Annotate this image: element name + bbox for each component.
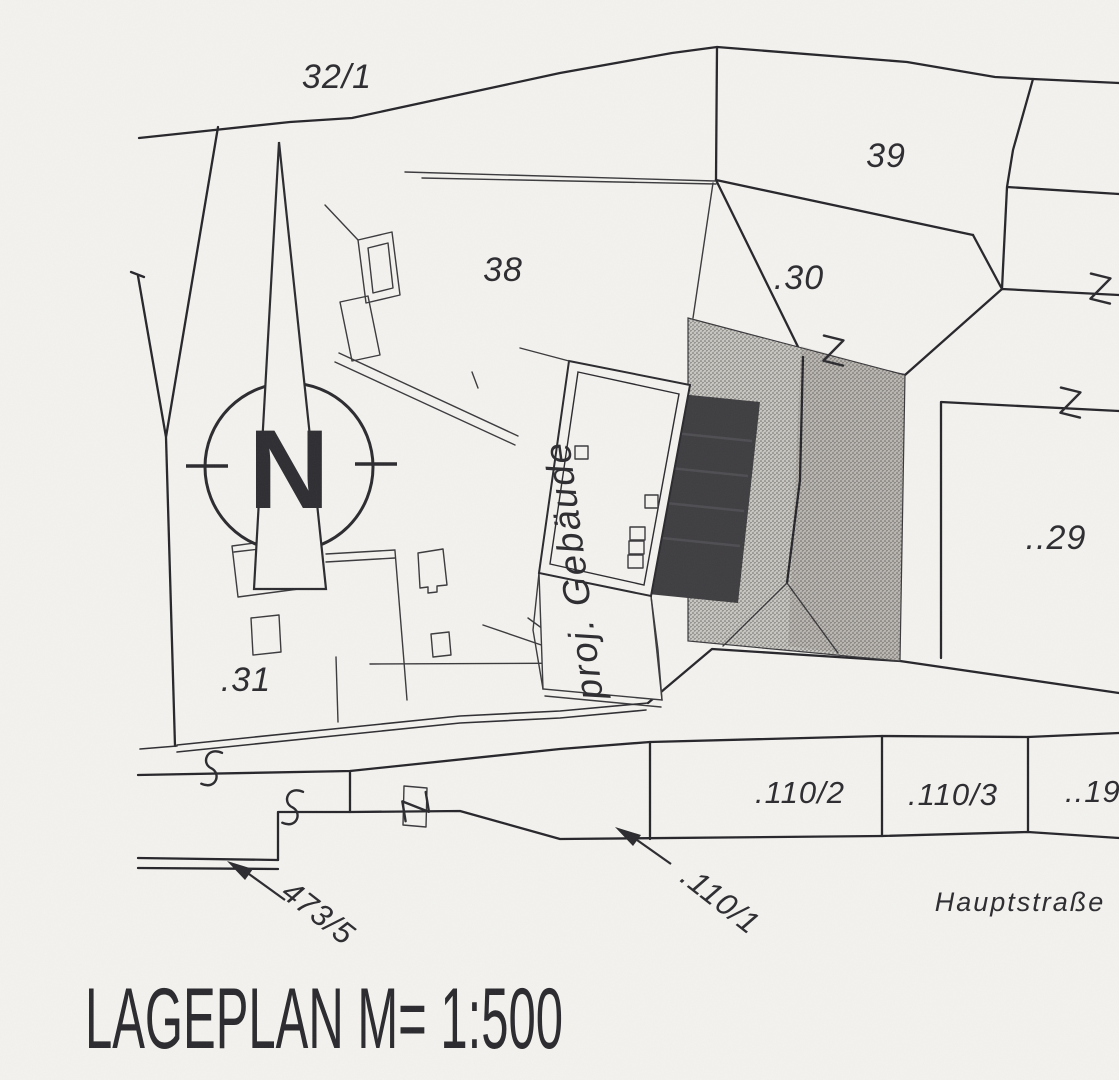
lageplan-scan-page: proj. Gebäude N [0, 0, 1119, 1080]
scan-grain-overlay [0, 0, 1119, 1080]
lageplan-drawing: proj. Gebäude N [0, 0, 1119, 1080]
